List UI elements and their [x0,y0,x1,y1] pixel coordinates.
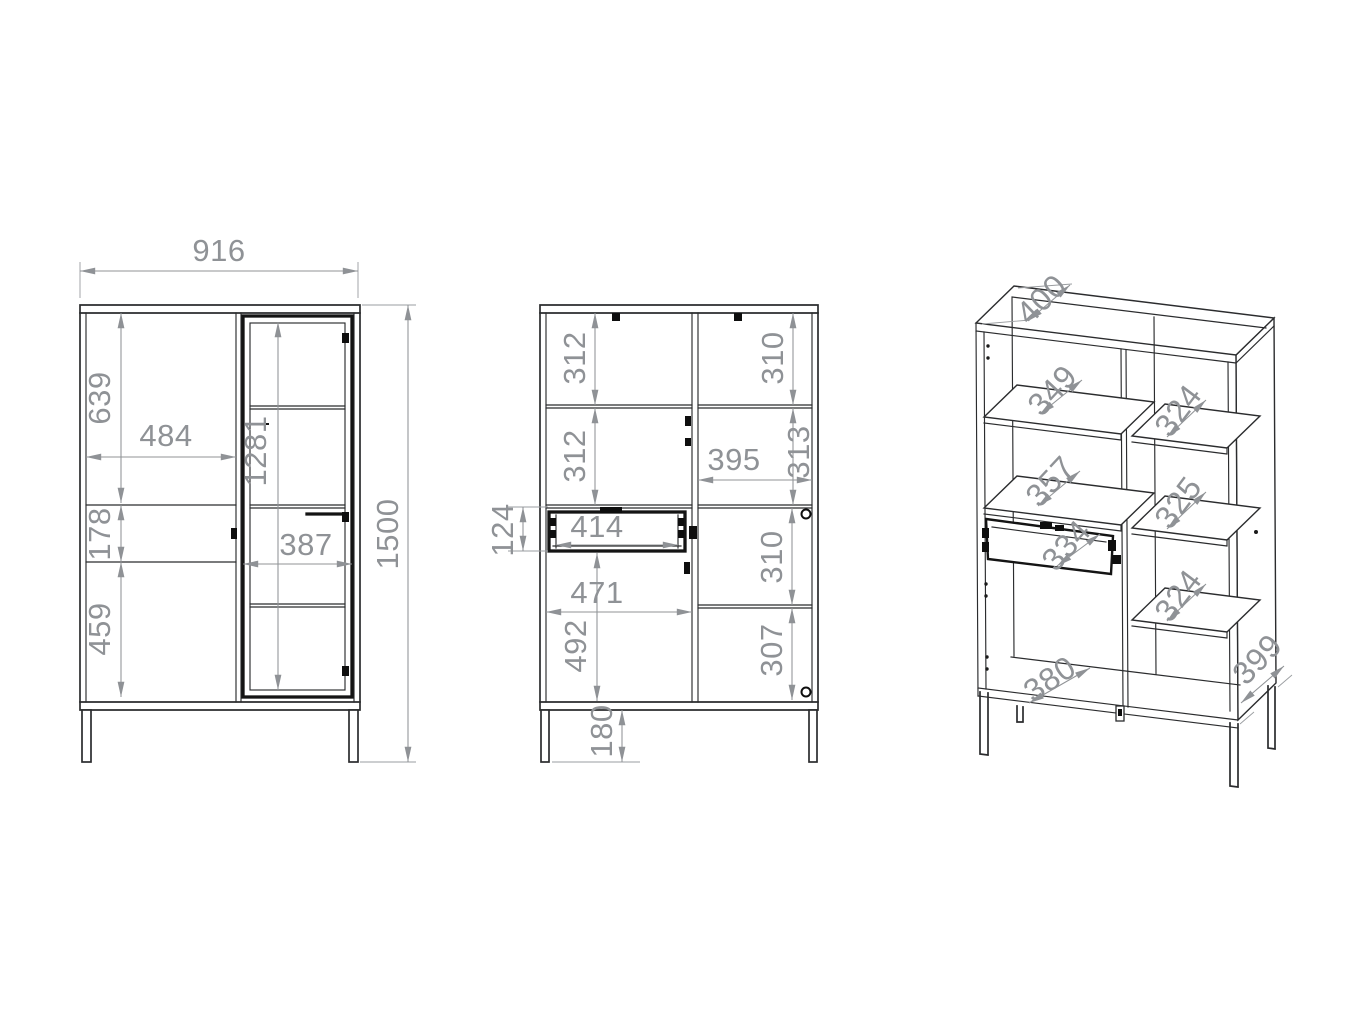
dim-label-459: 459 [82,602,117,655]
dim-label-387: 387 [279,527,332,562]
perspective-view: 400349324357325334324380399 [976,267,1292,787]
dim-label-310: 310 [755,331,790,384]
dim-label-307: 307 [754,623,789,676]
dim-label-312: 312 [557,331,592,384]
front-legs [82,710,358,762]
dim-label-916: 916 [192,233,245,268]
dim-label-1281: 1281 [238,416,273,487]
dim-label-395: 395 [707,442,760,477]
section-legs [541,710,817,762]
drawing-sheet: 91663948412811783874591500 [0,0,1357,1017]
section-view: 312312310313395124414471492310307180 [485,305,818,762]
glass-door-frame [243,316,352,697]
front-panels [86,313,354,702]
dim-label-399: 399 [1225,627,1289,691]
dim-label-471: 471 [570,575,623,610]
dim-label-312: 312 [557,429,592,482]
dim-label-1500: 1500 [370,499,405,570]
technical-drawing-canvas: 91663948412811783874591500 [0,0,1357,1017]
wall-hinge-marks [802,510,811,697]
dim-label-484: 484 [139,418,192,453]
dim-label-313: 313 [781,425,816,478]
dim-label-180: 180 [584,704,619,757]
dim-label-178: 178 [82,507,117,560]
dim-label-310: 310 [754,530,789,583]
front-view: 91663948412811783874591500 [80,233,416,762]
dim-label-414: 414 [570,509,623,544]
front-dimension-lines [80,262,416,762]
dim-label-639: 639 [82,371,117,424]
divider-foot [1118,709,1122,716]
dim-label-124: 124 [485,503,520,556]
dim-label-492: 492 [558,619,593,672]
